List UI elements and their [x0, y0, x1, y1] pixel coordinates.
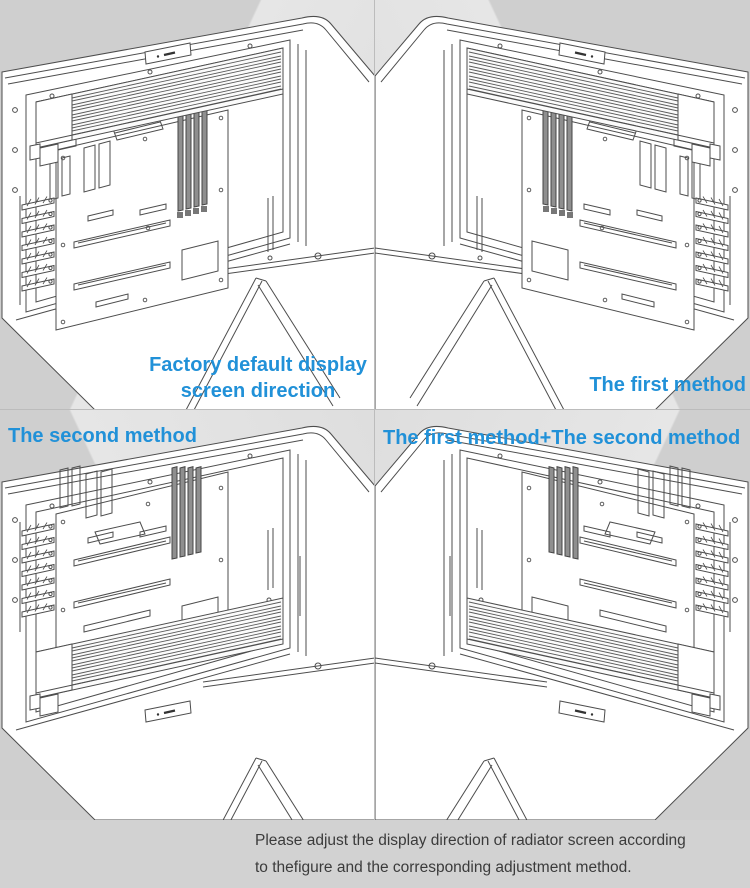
label-line: Factory default display	[149, 354, 367, 376]
caption-line-1: Please adjust the display direction of r…	[255, 827, 750, 854]
case-illustration-radiator-top-mirrored	[375, 0, 750, 410]
panel-label-second-method: The second method	[8, 425, 197, 448]
panel-second-method: The second method	[0, 410, 375, 820]
caption-line-2: to thefigure and the corresponding adjus…	[255, 854, 750, 881]
panel-label-factory-default: Factory default display screen direction	[140, 352, 375, 404]
panel-label-first-plus-second-method: The first method+The second method	[383, 427, 740, 450]
panel-factory-default: Factory default display screen direction	[0, 0, 375, 410]
instruction-caption: Please adjust the display direction of r…	[0, 820, 750, 888]
case-illustration-radiator-bottom-mirrored	[375, 410, 750, 820]
case-illustration-radiator-bottom	[0, 410, 375, 820]
panel-label-first-method: The first method	[589, 374, 746, 397]
label-line: screen direction	[181, 380, 336, 402]
manual-page: Factory default display screen direction…	[0, 0, 750, 888]
panel-grid: Factory default display screen direction…	[0, 0, 750, 820]
panel-first-method: The first method	[375, 0, 750, 410]
panel-first-plus-second-method: The first method+The second method	[375, 410, 750, 820]
case-illustration-radiator-top	[0, 0, 375, 410]
